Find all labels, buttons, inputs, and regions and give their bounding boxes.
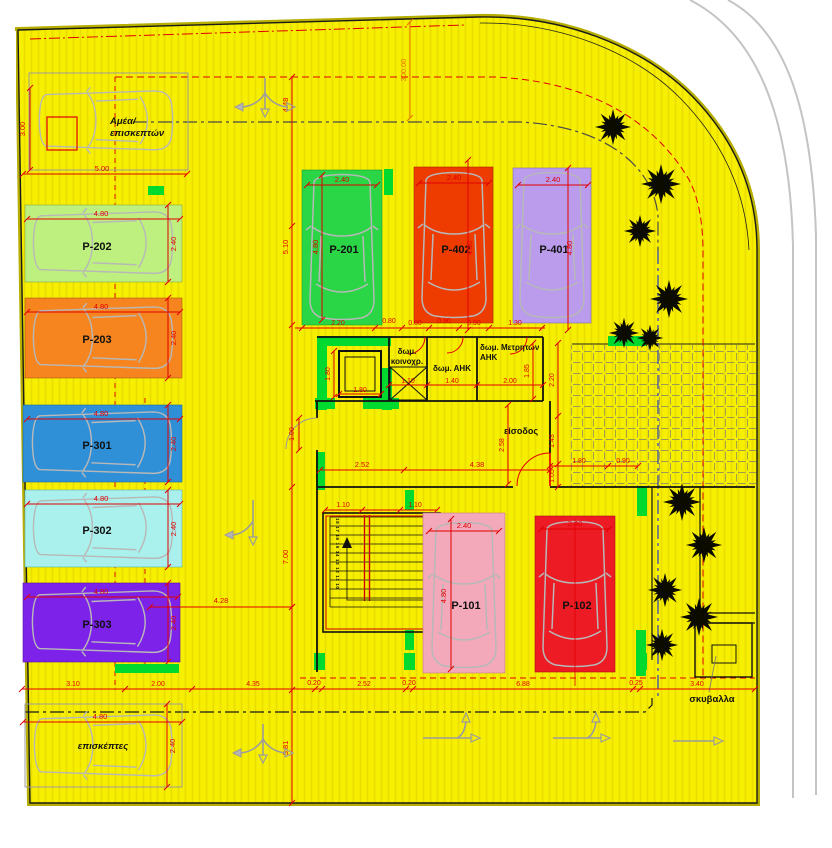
parking-space-p203: P-203 4.80 2.40: [24, 295, 183, 381]
amea-label-line1: Αμέα/: [109, 116, 137, 127]
svg-text:4.80: 4.80: [94, 302, 109, 311]
svg-text:2.52: 2.52: [355, 460, 370, 469]
svg-text:1.80: 1.80: [325, 367, 332, 381]
p303-label: P-303: [82, 619, 111, 631]
svg-text:2.20: 2.20: [549, 373, 556, 387]
svg-text:2.40: 2.40: [457, 521, 472, 530]
svg-text:4.80: 4.80: [94, 587, 109, 596]
p101-label: P-101: [451, 600, 480, 612]
svg-text:4.80: 4.80: [439, 589, 448, 604]
entrance-label: είσοδος: [504, 426, 538, 436]
svg-text:1.05: 1.05: [549, 469, 556, 483]
svg-text:0.20: 0.20: [402, 680, 416, 687]
svg-text:2.58: 2.58: [499, 438, 506, 452]
svg-text:1.80: 1.80: [572, 458, 586, 465]
parking-middle-row: P-201 2.40 4.80 P-402 2.40 4.80 P-401 2.…: [295, 157, 591, 333]
svg-text:2.52: 2.52: [357, 681, 371, 688]
svg-text:1.10: 1.10: [408, 502, 422, 509]
svg-text:4.80: 4.80: [93, 712, 108, 721]
svg-text:2.00: 2.00: [151, 681, 165, 688]
svg-text:4.80: 4.80: [94, 494, 109, 503]
svg-text:2.40: 2.40: [168, 739, 177, 754]
parking-space-p201: P-201 2.40 4.80: [302, 170, 382, 325]
p202-label: P-202: [82, 241, 111, 253]
stair-numbers-left: 18 17 16 15 14 13 12 11 10: [335, 518, 340, 590]
garbage-label: σκυβαλλα: [689, 694, 734, 705]
svg-text:1.30: 1.30: [508, 320, 522, 327]
svg-text:4.80: 4.80: [465, 241, 474, 256]
metriton-label-2: ΑΗΚ: [480, 353, 498, 362]
parking-space-p401: P-401 2.40 4.80: [513, 165, 591, 333]
svg-text:2.00: 2.00: [503, 378, 517, 385]
svg-text:3.10: 3.10: [66, 681, 80, 688]
svg-text:0.90: 0.90: [616, 458, 630, 465]
p301-label: P-301: [82, 440, 111, 452]
parking-space-p101: P-101 2.40 4.80: [423, 513, 505, 673]
amea-label-line2: επισκεπτών: [110, 128, 165, 139]
svg-text:4.80: 4.80: [565, 241, 574, 256]
svg-text:4.80: 4.80: [94, 409, 109, 418]
ahk-room-label: δωμ. ΑΗΚ: [433, 364, 471, 373]
svg-text:4.38: 4.38: [470, 460, 485, 469]
p102-label: P-102: [562, 600, 591, 612]
svg-text:2.40: 2.40: [447, 173, 462, 182]
dim-amea-depth: 3.00: [18, 122, 27, 137]
koinoxr-label-1: δωμ.: [398, 347, 417, 356]
parking-left-column: P-202 4.80 2.40 P-203 4.80 2.40 P-301 4.…: [23, 202, 183, 665]
floor-plan-page: Αμέα/ επισκεπτών 3.00 5.00 P-202 4.80 2.…: [0, 0, 832, 848]
parking-space-p303: P-303 4.80 2.40: [23, 580, 181, 665]
svg-text:4.35: 4.35: [246, 681, 260, 688]
svg-text:2.40: 2.40: [169, 522, 178, 537]
svg-text:5.10: 5.10: [281, 240, 290, 255]
parking-space-p202: P-202 4.80 2.40: [24, 202, 183, 285]
p203-label: P-203: [82, 334, 111, 346]
site-plan-drawing: Αμέα/ επισκεπτών 3.00 5.00 P-202 4.80 2.…: [0, 0, 832, 848]
svg-text:0.20: 0.20: [307, 680, 321, 687]
svg-text:6.88: 6.88: [516, 681, 530, 688]
svg-text:0.80: 0.80: [382, 318, 396, 325]
metriton-label-1: δωμ. Μετρητών: [480, 343, 540, 352]
svg-text:1.10: 1.10: [336, 502, 350, 509]
parking-space-p302: P-302 4.80 2.40: [24, 487, 183, 570]
svg-text:1.80: 1.80: [353, 387, 367, 394]
p302-label: P-302: [82, 525, 111, 537]
parking-space-p402: P-402 2.40 4.80: [414, 157, 493, 333]
svg-text:0.25: 0.25: [629, 680, 643, 687]
svg-text:4.80: 4.80: [311, 240, 320, 255]
koinoxr-label-2: κοινοχρ.: [391, 357, 423, 366]
svg-text:0.80: 0.80: [408, 320, 422, 327]
svg-text:0.90: 0.90: [467, 320, 481, 327]
svg-text:2.40: 2.40: [169, 616, 178, 631]
p201-label: P-201: [329, 244, 358, 256]
svg-text:2.40: 2.40: [169, 437, 178, 452]
svg-text:2.40: 2.40: [546, 175, 561, 184]
svg-text:2.40: 2.40: [335, 175, 350, 184]
svg-text:4.28: 4.28: [214, 596, 229, 605]
parking-space-p102: P-102 2.40: [535, 516, 615, 686]
dim-road-station: 300.00: [399, 59, 408, 82]
svg-text:0.90: 0.90: [437, 318, 451, 325]
svg-text:7.00: 7.00: [281, 550, 290, 565]
visitors-label: επισκέπτες: [78, 741, 129, 752]
svg-text:2.40: 2.40: [169, 237, 178, 252]
svg-text:1.40: 1.40: [445, 378, 459, 385]
dim-amea-width: 5.00: [95, 164, 110, 173]
svg-text:3.40: 3.40: [690, 681, 704, 688]
parking-space-p301: P-301 4.80 2.40: [23, 402, 183, 485]
svg-text:2.20: 2.20: [331, 320, 345, 327]
svg-text:2.40: 2.40: [169, 331, 178, 346]
svg-text:1.10: 1.10: [401, 378, 415, 385]
svg-text:4.80: 4.80: [94, 209, 109, 218]
svg-text:1.85: 1.85: [524, 364, 531, 378]
svg-text:1.43: 1.43: [549, 434, 556, 448]
